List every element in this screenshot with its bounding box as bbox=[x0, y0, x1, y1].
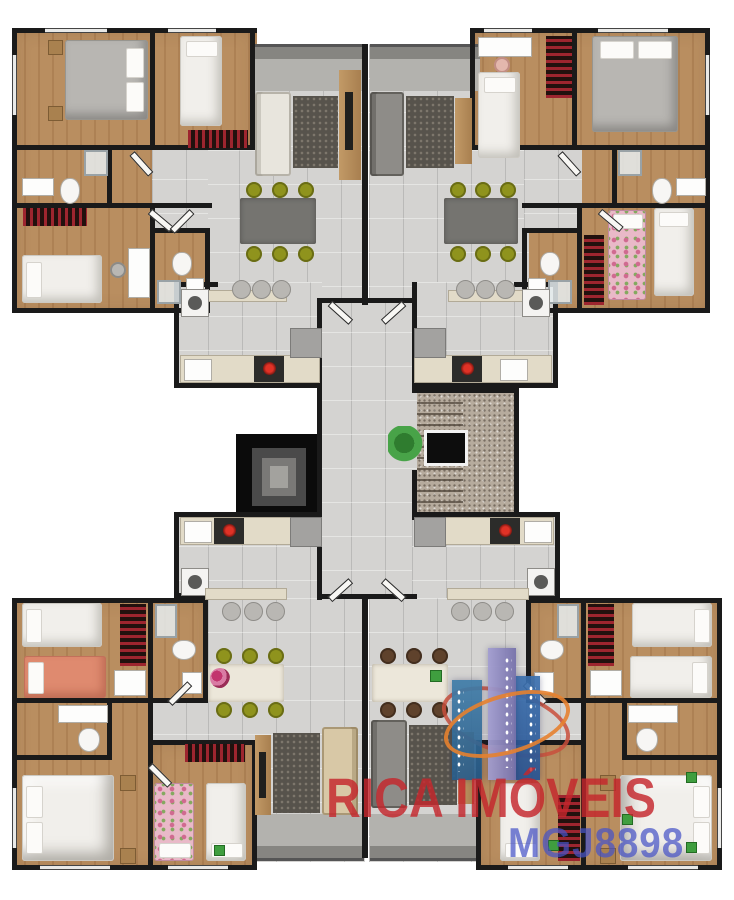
fridge bbox=[414, 517, 446, 547]
wall bbox=[581, 598, 586, 703]
window bbox=[484, 28, 532, 33]
dining-chair bbox=[272, 182, 288, 198]
stove-burner bbox=[223, 524, 236, 537]
plant-icon bbox=[686, 772, 697, 783]
wall bbox=[522, 308, 710, 313]
island-stool bbox=[451, 602, 470, 621]
kitchen-island bbox=[447, 588, 529, 600]
bookshelf bbox=[23, 208, 87, 226]
dining-chair bbox=[216, 702, 232, 718]
dining-chair bbox=[242, 648, 258, 664]
desk bbox=[478, 37, 532, 57]
shower-box bbox=[84, 150, 108, 176]
desk bbox=[590, 670, 622, 696]
desk bbox=[128, 248, 150, 298]
shower-box bbox=[548, 280, 572, 304]
window bbox=[717, 788, 722, 848]
tv-sideboard bbox=[455, 98, 472, 164]
fridge bbox=[414, 328, 446, 358]
wall bbox=[148, 598, 153, 703]
nightstand bbox=[120, 775, 136, 791]
kitchen-sink bbox=[500, 359, 528, 381]
nightstand bbox=[48, 40, 63, 55]
corridor-plant-icon bbox=[388, 426, 424, 464]
wall bbox=[622, 755, 722, 760]
pillow bbox=[638, 41, 672, 59]
pillow bbox=[600, 41, 634, 59]
pillow bbox=[692, 662, 708, 694]
pillow bbox=[659, 212, 689, 227]
window bbox=[40, 865, 110, 870]
plant-icon bbox=[430, 670, 442, 682]
tv-icon bbox=[259, 752, 266, 798]
island-stool bbox=[244, 602, 263, 621]
watermark-brand: RICA IMÓVEIS bbox=[326, 770, 656, 826]
nightstand bbox=[48, 106, 63, 121]
toilet bbox=[652, 178, 672, 204]
wall bbox=[412, 388, 519, 393]
window bbox=[45, 28, 107, 33]
bathroom-counter bbox=[58, 705, 108, 723]
washing-machine bbox=[527, 568, 555, 596]
pillow bbox=[26, 609, 42, 643]
window bbox=[705, 55, 710, 115]
pillow bbox=[159, 843, 191, 858]
pillow bbox=[484, 77, 516, 93]
wall bbox=[150, 28, 155, 150]
window bbox=[12, 788, 17, 848]
watermark-registration: MGJ8898 bbox=[508, 822, 684, 864]
kitchen-island bbox=[205, 588, 287, 600]
dining-chair bbox=[380, 702, 396, 718]
sofa bbox=[370, 92, 404, 176]
rug bbox=[273, 733, 320, 813]
wall bbox=[572, 28, 577, 150]
sofa bbox=[255, 92, 291, 176]
dining-chair bbox=[242, 702, 258, 718]
wall bbox=[622, 703, 627, 760]
entry-wall-a bbox=[317, 298, 367, 303]
dining-chair bbox=[406, 648, 422, 664]
dining-chair bbox=[268, 648, 284, 664]
dining-chair bbox=[298, 182, 314, 198]
bathroom-sink bbox=[676, 178, 706, 196]
window bbox=[598, 28, 668, 33]
kitchen-sink bbox=[184, 359, 212, 381]
pillow bbox=[126, 48, 144, 78]
wall bbox=[174, 383, 322, 388]
wall bbox=[514, 388, 519, 520]
dining-chair bbox=[432, 648, 448, 664]
pillow bbox=[694, 609, 710, 643]
desk-chair bbox=[494, 57, 510, 73]
island-stool bbox=[232, 280, 251, 299]
rug bbox=[406, 96, 454, 168]
wall bbox=[522, 228, 582, 233]
entry-wall-d bbox=[367, 594, 417, 599]
dining-chair bbox=[500, 246, 516, 262]
pillow bbox=[26, 262, 42, 298]
desk bbox=[114, 670, 146, 696]
toilet bbox=[172, 640, 196, 660]
stove-burner bbox=[461, 362, 474, 375]
toilet bbox=[78, 728, 100, 752]
wall bbox=[148, 703, 153, 870]
shower-box bbox=[155, 604, 177, 638]
shower-box bbox=[618, 150, 642, 176]
island-stool bbox=[252, 280, 271, 299]
dining-chair bbox=[246, 246, 262, 262]
wall bbox=[12, 755, 112, 760]
washing-machine bbox=[181, 289, 209, 317]
kitchen-sink bbox=[524, 521, 552, 543]
toilet bbox=[60, 178, 80, 204]
bookshelf bbox=[185, 744, 245, 762]
window bbox=[12, 55, 17, 115]
window bbox=[168, 865, 228, 870]
island-stool bbox=[222, 602, 241, 621]
wall bbox=[150, 228, 210, 233]
stair-void bbox=[424, 430, 468, 466]
wardrobe bbox=[546, 36, 572, 98]
wall bbox=[612, 145, 617, 207]
dining-chair bbox=[272, 246, 288, 262]
flower-vase-icon bbox=[210, 668, 230, 688]
dining-chair bbox=[246, 182, 262, 198]
pillow bbox=[693, 786, 710, 818]
island-stool bbox=[266, 602, 285, 621]
tv-icon bbox=[345, 92, 353, 150]
kitchen-counter bbox=[414, 355, 552, 383]
dining-chair bbox=[268, 702, 284, 718]
dining-chair bbox=[216, 648, 232, 664]
wall-center-top bbox=[362, 44, 368, 305]
shower-box bbox=[557, 604, 579, 638]
island-stool bbox=[272, 280, 291, 299]
elevator-car-core bbox=[270, 466, 288, 488]
dining-chair bbox=[500, 182, 516, 198]
pillow bbox=[26, 786, 43, 818]
pillow bbox=[126, 82, 144, 112]
island-stool bbox=[495, 602, 514, 621]
unit-b-hall-floor bbox=[524, 145, 582, 231]
wardrobe bbox=[588, 604, 614, 666]
dining-chair bbox=[450, 246, 466, 262]
pillow bbox=[186, 41, 218, 57]
toilet bbox=[540, 640, 564, 660]
dining-chair bbox=[380, 648, 396, 664]
island-stool bbox=[476, 280, 495, 299]
wall bbox=[174, 512, 179, 598]
fridge bbox=[290, 517, 322, 547]
entry-wall-c bbox=[317, 594, 367, 599]
desk-chair bbox=[110, 262, 126, 278]
plant-icon bbox=[686, 842, 697, 853]
washing-machine bbox=[522, 289, 550, 317]
island-stool bbox=[473, 602, 492, 621]
dining-chair bbox=[298, 246, 314, 262]
entry-wall-b bbox=[367, 298, 417, 303]
island-stool bbox=[496, 280, 515, 299]
bookshelf bbox=[584, 235, 604, 305]
dining-chair bbox=[450, 182, 466, 198]
floor-plan-render: RICA IMÓVEIS MGJ8898 bbox=[0, 0, 734, 900]
bathroom-counter bbox=[628, 705, 678, 723]
nightstand bbox=[120, 848, 136, 864]
toilet bbox=[172, 252, 192, 276]
pillow bbox=[28, 662, 44, 694]
dining-chair bbox=[475, 182, 491, 198]
kitchen-sink bbox=[184, 521, 212, 543]
rug bbox=[293, 96, 338, 168]
bathroom-sink bbox=[22, 178, 54, 196]
toilet bbox=[540, 252, 560, 276]
pillow bbox=[26, 822, 43, 854]
wardrobe bbox=[120, 604, 146, 666]
dining-table bbox=[444, 198, 518, 244]
dining-table bbox=[240, 198, 316, 244]
stove-burner bbox=[263, 362, 276, 375]
toilet bbox=[636, 728, 658, 752]
stove-burner bbox=[499, 524, 512, 537]
wall bbox=[555, 512, 560, 598]
unit-b-balcony bbox=[370, 44, 480, 91]
dining-chair bbox=[406, 702, 422, 718]
island-stool bbox=[456, 280, 475, 299]
window bbox=[168, 28, 216, 33]
bookshelf bbox=[188, 130, 248, 148]
dining-chair bbox=[475, 246, 491, 262]
plant-icon bbox=[214, 845, 225, 856]
fridge bbox=[290, 328, 322, 358]
shower-box bbox=[157, 280, 181, 304]
wall bbox=[577, 203, 582, 313]
